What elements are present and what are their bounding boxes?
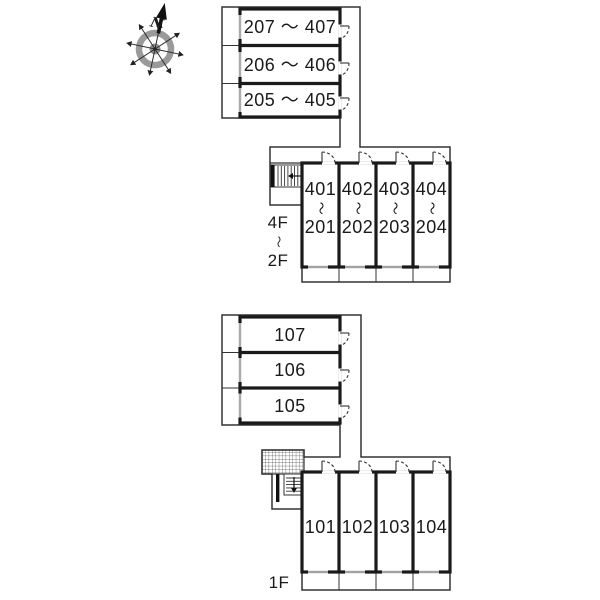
floor-range-bottom: 2F	[268, 251, 289, 271]
unit-label-401-201: 401 ～ 201	[304, 171, 338, 245]
unit-label-103: 103	[377, 517, 413, 537]
entry-porch-hatch	[262, 450, 304, 474]
unit-upper-number: 402	[342, 179, 374, 200]
compass-rose-icon	[122, 0, 192, 80]
unit-lower-number: 202	[342, 217, 374, 238]
floor-range-label: 4F ～ 2F	[257, 206, 299, 278]
unit-label-102: 102	[340, 517, 376, 537]
unit-label-101: 101	[303, 517, 339, 537]
room-label-207-407: 207 ～ 407	[241, 16, 339, 38]
unit-upper-number: 403	[379, 179, 411, 200]
room-label-105: 105	[241, 395, 339, 417]
floor-range-top: 4F	[268, 213, 289, 233]
stairs-icon-upper	[271, 165, 303, 187]
unit-upper-number: 401	[305, 179, 337, 200]
unit-label-402-202: 402 ～ 202	[341, 171, 375, 245]
range-tilde: ～	[314, 201, 327, 215]
range-tilde: ～	[425, 201, 438, 215]
room-label-206-406: 206 ～ 406	[241, 54, 339, 76]
floor-label-1f: 1F	[263, 573, 295, 593]
unit-label-403-203: 403 ～ 203	[378, 171, 412, 245]
room-label-107: 107	[241, 324, 339, 346]
unit-label-104: 104	[414, 517, 450, 537]
unit-upper-number: 404	[416, 179, 448, 200]
room-label-106: 106	[241, 359, 339, 381]
room-label-205-405: 205 ～ 405	[241, 89, 339, 111]
range-tilde: ～	[272, 236, 284, 249]
unit-lower-number: 201	[305, 217, 337, 238]
range-tilde: ～	[351, 201, 364, 215]
unit-lower-number: 203	[379, 217, 411, 238]
floorplan-page: N 207 ～ 407 206 ～ 406 205 ～ 405 401 ～ 20…	[0, 0, 600, 600]
lower-building-outline	[222, 315, 450, 590]
range-tilde: ～	[388, 201, 401, 215]
unit-lower-number: 204	[416, 217, 448, 238]
unit-label-404-204: 404 ～ 204	[415, 171, 449, 245]
